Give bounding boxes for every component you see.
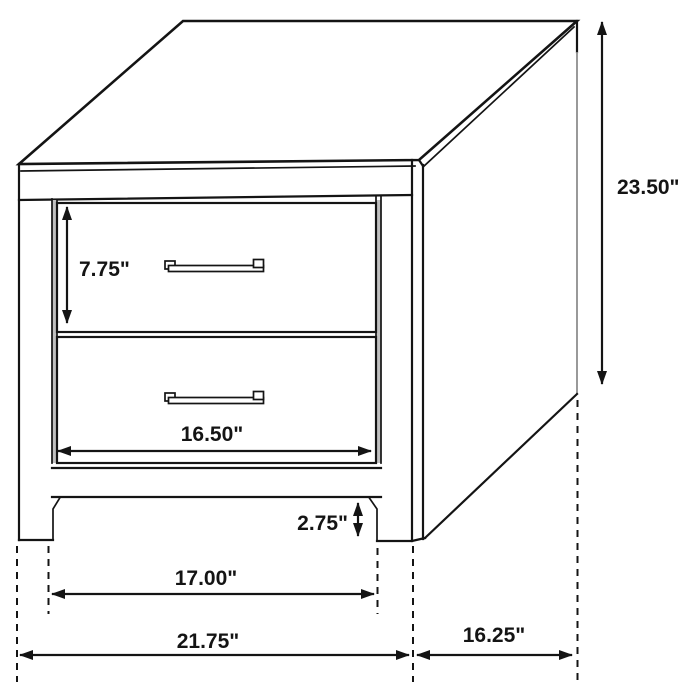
dimension-diagram: 7.75" 23.50" 16.50" 2.75" 17.00" 21.75" … [0,0,700,700]
nightstand-drawing: 7.75" 23.50" 16.50" 2.75" 17.00" 21.75" … [0,0,700,700]
overall-width-label: 21.75" [177,630,240,653]
leg-span-label: 17.00" [175,567,238,590]
drawer-width-label: 16.50" [181,423,244,446]
overall-depth-label: 16.25" [463,624,526,647]
drawer-height-label: 7.75" [79,258,130,281]
overall-height-label: 23.50" [617,176,680,199]
nightstand-body [19,21,577,541]
base-clearance-label: 2.75" [297,512,348,535]
